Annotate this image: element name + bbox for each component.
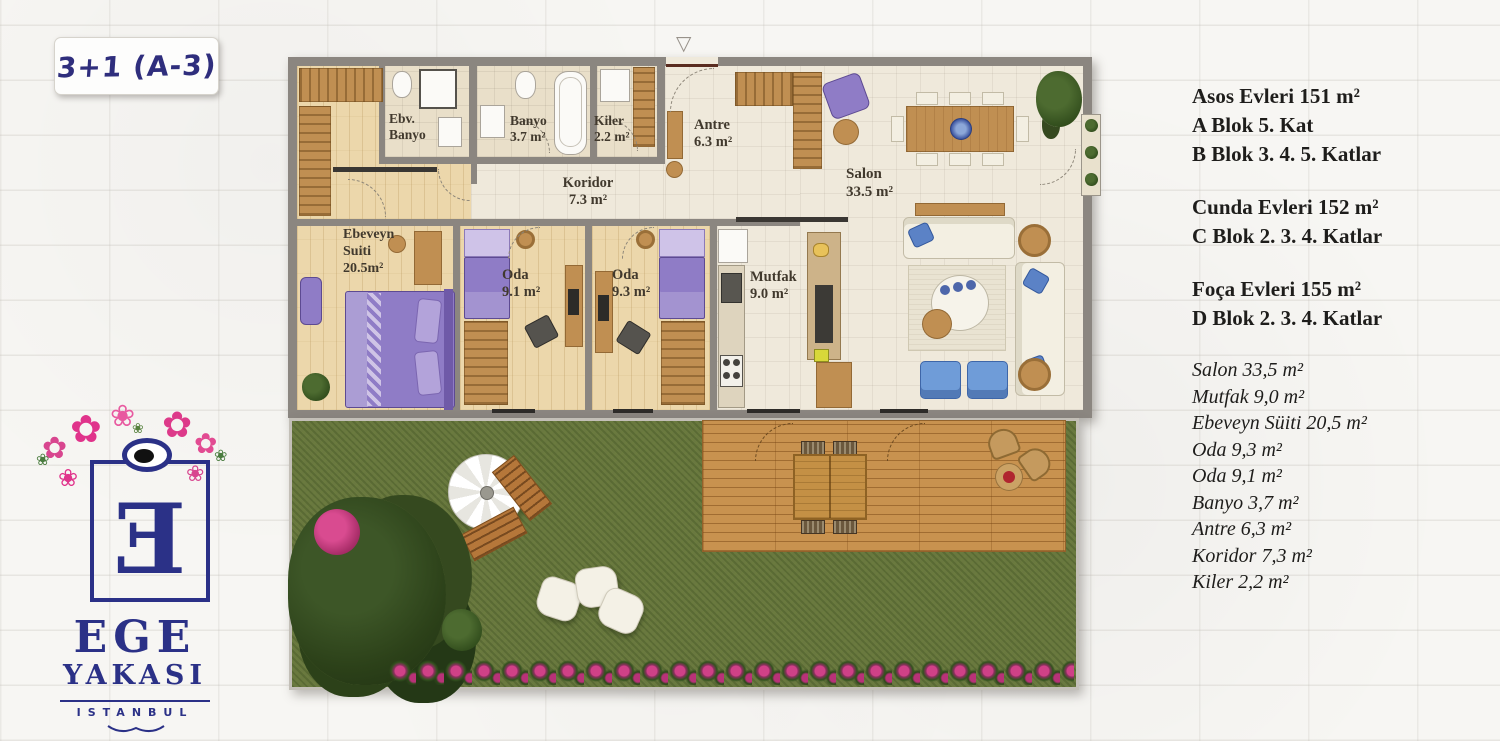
bougainvillea-flower-icon: ❀: [58, 466, 78, 490]
side-table: [922, 309, 952, 339]
unit-type-badge: 3+1 (A-3): [54, 37, 219, 95]
sliding-door-track: [333, 167, 437, 172]
table-bowl: [950, 118, 972, 140]
dining-chair: [891, 116, 904, 142]
deck-chair: [801, 441, 825, 455]
island-bread: [813, 243, 829, 257]
wardrobe: [299, 106, 331, 216]
room-area-item: Mutfak 9,0 m²: [1192, 384, 1492, 411]
label-ebeveyn: Ebeveyn Suiti 20.5m²: [343, 227, 394, 277]
dining-chair: [949, 92, 971, 105]
logo-flourish: [106, 722, 166, 736]
room-area-item: Oda 9,3 m²: [1192, 437, 1492, 464]
dining-chair: [916, 153, 938, 166]
monitor-icon: [568, 289, 579, 315]
dining-chair: [949, 153, 971, 166]
wicker-chair: [984, 425, 1022, 462]
bougainvillea-flower-icon: ✿: [70, 410, 102, 448]
page: { "badge": { "label": "3+1 (A-3)" }, "lo…: [0, 0, 1500, 741]
room-area-item: Salon 33,5 m²: [1192, 357, 1492, 384]
wall: [710, 226, 717, 410]
label-kiler: Kiler 2.2 m²: [594, 113, 630, 145]
wardrobe: [299, 68, 383, 102]
unit-type-label: 3+1 (A-3): [55, 48, 217, 84]
room-area-item: Oda 9,1 m²: [1192, 463, 1492, 490]
logo-word-ege: EGE: [36, 612, 234, 663]
bed-pillow: [414, 350, 442, 396]
label-mutfak: Mutfak 9.0 m²: [750, 269, 797, 304]
wall: [657, 66, 665, 164]
logo-word-yakasi: YAKASI: [36, 660, 234, 691]
label-banyo: Banyo 3.7 m²: [510, 113, 547, 145]
label-oda-91: Oda 9.1 m²: [502, 267, 540, 302]
door-arc: [887, 423, 925, 461]
project-line: A Blok 5. Kat: [1192, 111, 1492, 140]
side-table: [1018, 224, 1051, 257]
logo-word-istanbul: ISTANBUL: [60, 700, 210, 719]
island-cooktop: [815, 285, 833, 343]
project-title: Asos Evleri 151 m²: [1192, 82, 1492, 111]
side-table: [666, 161, 683, 178]
project-line: B Blok 3. 4. 5. Katlar: [1192, 140, 1492, 169]
dining-chair: [982, 92, 1004, 105]
side-table: [1018, 358, 1051, 391]
toilet-icon: [392, 71, 412, 98]
logo-monogram: Ǝ: [113, 492, 186, 588]
island-flowers: [814, 349, 829, 362]
single-bed-pillow: [659, 229, 705, 257]
bathtub-inner: [559, 77, 582, 147]
shower-icon: [419, 69, 457, 109]
room-area-item: Kiler 2,2 m²: [1192, 569, 1492, 596]
project-line: D Blok 2. 3. 4. Katlar: [1192, 304, 1492, 333]
room-area-list: Salon 33,5 m² Mutfak 9,0 m² Ebeveyn Süit…: [1192, 357, 1492, 596]
entrance-door: [666, 64, 718, 67]
sink-icon: [721, 273, 742, 303]
brand-logo: ✿ ✿ ❀ ✿ ✿ ❀ ❀ ❀ ❀ ❀ Ǝ EGE YAKASI ISTANBU…: [36, 408, 234, 738]
deck-chair: [801, 520, 825, 534]
wall: [376, 219, 508, 226]
toilet-icon: [515, 71, 536, 99]
project-title: Cunda Evleri 152 m²: [1192, 193, 1492, 222]
wall: [469, 66, 477, 157]
coat-closet: [735, 72, 793, 106]
side-table: [833, 119, 859, 145]
project-block-cunda: Cunda Evleri 152 m² C Blok 2. 3. 4. Katl…: [1192, 193, 1492, 251]
wardrobe: [661, 321, 705, 405]
armchair: [920, 361, 961, 399]
logo-frame: Ǝ: [90, 460, 210, 602]
bed-runner: [367, 293, 381, 406]
deck-chair: [833, 520, 857, 534]
wall: [379, 157, 665, 164]
bed-pillow: [414, 298, 442, 344]
room-area-item: Antre 6,3 m²: [1192, 516, 1492, 543]
sofa-console: [915, 203, 1005, 216]
door-arc: [755, 423, 793, 461]
palm-plant: [1036, 71, 1082, 127]
appliance: [600, 69, 630, 102]
floor-plan: ▽: [288, 57, 1092, 691]
bench: [300, 277, 322, 325]
planter-plant: [1085, 119, 1098, 132]
planter-plant: [1085, 146, 1098, 159]
console-table: [667, 111, 683, 159]
single-bed: [659, 257, 705, 319]
label-salon: Salon 33.5 m²: [846, 165, 893, 201]
garden: [289, 418, 1079, 690]
label-antre: Antre 6.3 m²: [694, 117, 732, 152]
fridge-icon: [718, 229, 748, 263]
evil-eye-icon: [122, 438, 172, 472]
room-area-item: Ebeveyn Süiti 20,5 m²: [1192, 410, 1492, 437]
wooden-deck: [702, 420, 1066, 552]
garden-door: [880, 409, 928, 413]
wall: [651, 219, 728, 226]
single-bed-pillow: [464, 229, 510, 257]
leaf-icon: ❀: [214, 448, 227, 464]
label-ebv-banyo: Ebv. Banyo: [389, 111, 426, 143]
deck-table: [793, 454, 867, 520]
wall: [297, 219, 348, 226]
project-title: Foça Evleri 155 m²: [1192, 275, 1492, 304]
headboard: [444, 289, 453, 410]
washbasin-icon: [438, 117, 462, 147]
planter-plant: [1085, 173, 1098, 186]
dresser: [414, 231, 442, 285]
umbrella-pole: [480, 486, 494, 500]
dining-chair: [982, 153, 1004, 166]
leaf-icon: ❀: [132, 422, 144, 436]
flower-border: [388, 658, 1074, 685]
small-bush: [442, 609, 482, 651]
bougainvillea-flower-icon: ✿: [162, 408, 192, 444]
leaf-icon: ❀: [36, 452, 49, 468]
dining-chair: [916, 92, 938, 105]
bowl-icon: [1003, 471, 1015, 483]
garden-door: [492, 409, 535, 413]
flower-bush: [314, 509, 360, 555]
armchair: [967, 361, 1008, 399]
project-block-asos: Asos Evleri 151 m² A Blok 5. Kat B Blok …: [1192, 82, 1492, 169]
coffee-table-decor: [940, 285, 950, 295]
room-area-item: Koridor 7,3 m²: [1192, 543, 1492, 570]
label-oda-93: Oda 9.3 m²: [612, 267, 650, 302]
wall: [585, 226, 592, 410]
wall: [471, 164, 477, 184]
wall: [536, 219, 623, 226]
garden-tree: [288, 497, 446, 685]
garden-door: [613, 409, 653, 413]
project-info: Asos Evleri 151 m² A Blok 5. Kat B Blok …: [1192, 82, 1492, 596]
project-block-foca: Foça Evleri 155 m² D Blok 2. 3. 4. Katla…: [1192, 275, 1492, 333]
room-area-item: Banyo 3,7 m²: [1192, 490, 1492, 517]
entrance-marker-icon: ▽: [676, 31, 691, 55]
washbasin-icon: [480, 105, 505, 138]
stove-burner: [723, 359, 730, 366]
plant: [302, 373, 330, 401]
sliding-door-track: [736, 217, 848, 222]
project-line: C Blok 2. 3. 4. Katlar: [1192, 222, 1492, 251]
garden-door: [747, 409, 800, 413]
deck-chair: [833, 441, 857, 455]
building-footprint: ▽: [288, 57, 1092, 418]
storage-shelf: [633, 67, 655, 147]
label-koridor: Koridor 7.3 m²: [540, 175, 636, 210]
shelf-unit: [793, 72, 822, 169]
island-cabinet: [816, 362, 852, 408]
wardrobe: [464, 321, 508, 405]
monitor-icon: [598, 295, 609, 321]
dining-chair: [1016, 116, 1029, 142]
